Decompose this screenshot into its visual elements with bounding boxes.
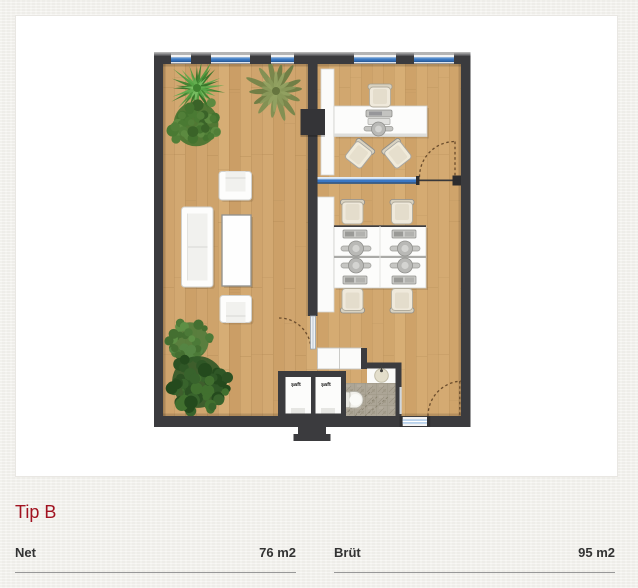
- svg-text:şaft: şaft: [291, 382, 301, 388]
- svg-text:şaft: şaft: [321, 382, 331, 388]
